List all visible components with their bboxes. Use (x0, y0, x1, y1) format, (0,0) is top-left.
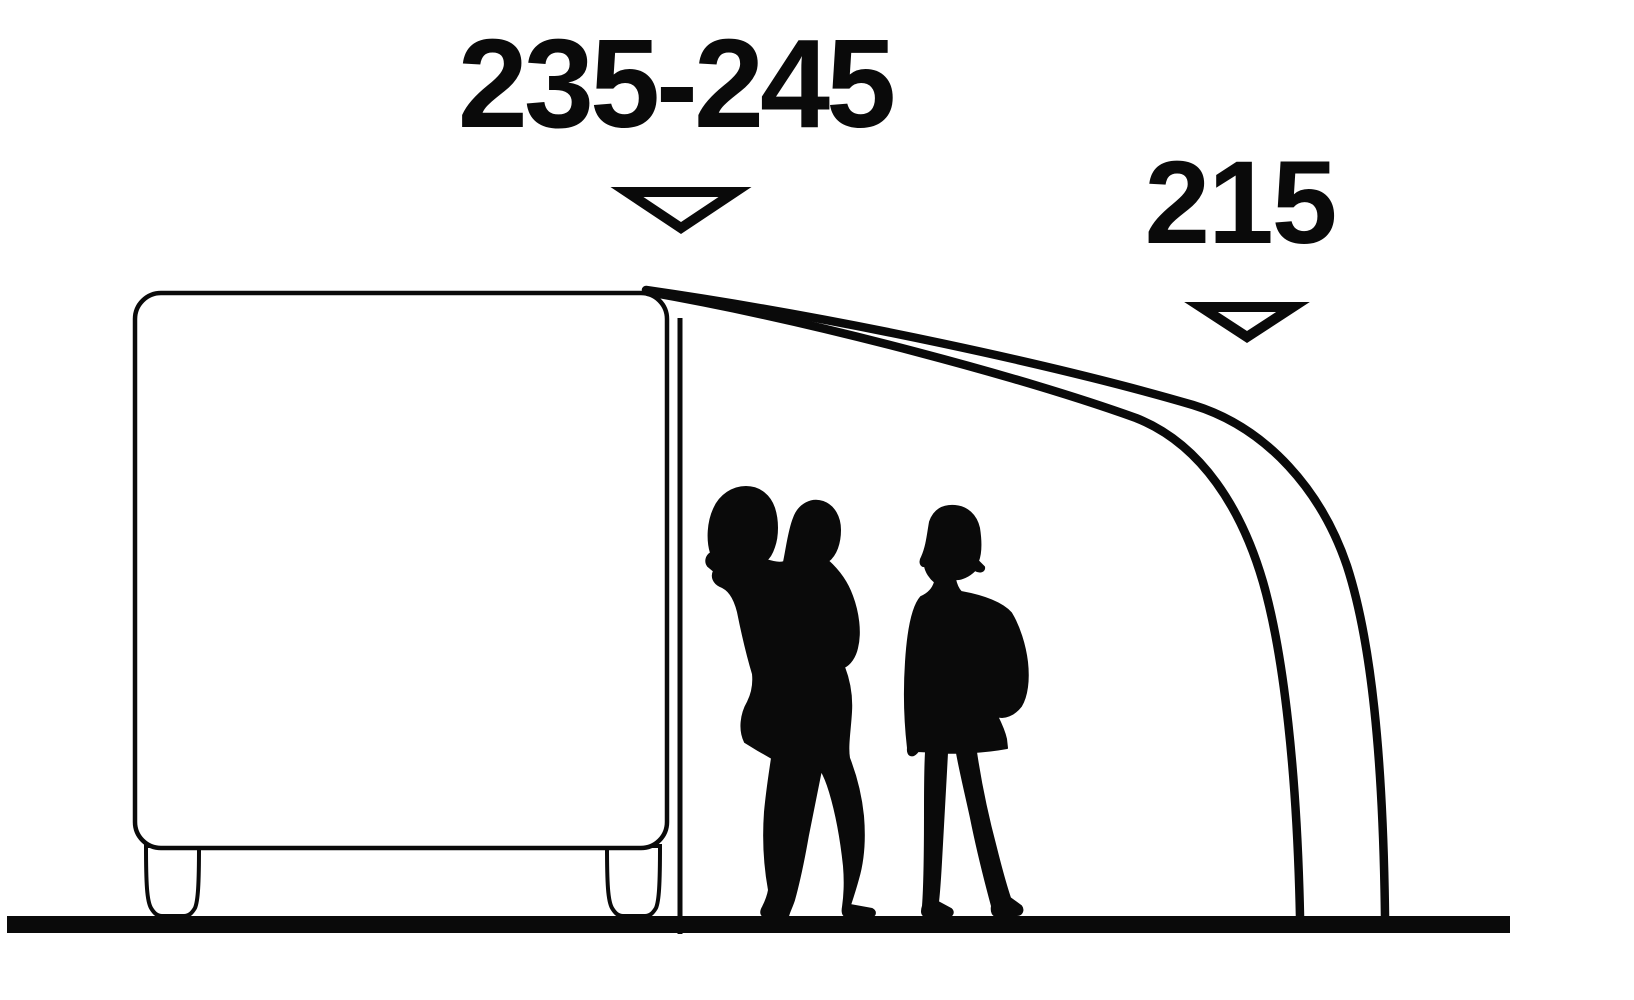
triangle-down-icon (1201, 307, 1293, 337)
triangle-down-icon (627, 192, 735, 228)
awning-diagram: 235-245 215 (0, 0, 1634, 1000)
ground-line (7, 916, 1510, 933)
caravan-side-profile (135, 293, 667, 848)
measurement-label-front-height: 215 (1145, 144, 1336, 262)
adult-carrying-child-silhouette (706, 487, 875, 916)
caravan-foot-right (607, 846, 660, 916)
standing-person-silhouette (905, 506, 1028, 916)
measurement-label-attachment-height: 235-245 (458, 21, 892, 147)
caravan-foot-left (146, 846, 199, 916)
